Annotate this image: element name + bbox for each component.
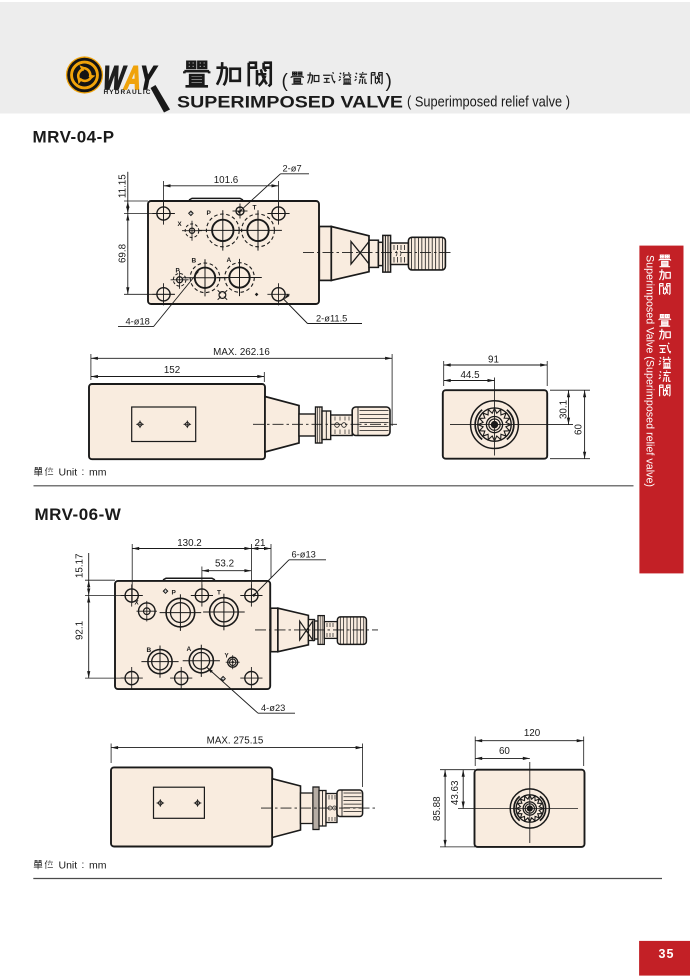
- svg-text:53.2: 53.2: [215, 559, 234, 570]
- svg-text:MRV-06-W: MRV-06-W: [35, 505, 122, 524]
- svg-text:2-ø7: 2-ø7: [283, 164, 302, 174]
- svg-text:MAX. 275.15: MAX. 275.15: [207, 736, 264, 747]
- svg-text:Unit: Unit: [59, 860, 78, 872]
- svg-text:60: 60: [499, 746, 510, 757]
- svg-text:mm: mm: [89, 467, 107, 479]
- svg-text:130.2: 130.2: [177, 538, 202, 549]
- svg-text:120: 120: [524, 728, 541, 739]
- svg-text:HYDRAULIC: HYDRAULIC: [104, 89, 152, 96]
- svg-text:92.1: 92.1: [75, 621, 86, 640]
- svg-text::: :: [82, 860, 85, 871]
- svg-text:101.6: 101.6: [214, 175, 239, 186]
- svg-text:(: (: [282, 71, 289, 92]
- svg-text::: :: [82, 467, 85, 478]
- svg-text:2-ø11.5: 2-ø11.5: [316, 313, 347, 323]
- svg-text:30.1: 30.1: [559, 400, 570, 419]
- svg-text:P: P: [172, 590, 177, 597]
- svg-text:( Superimposed relief valve ): ( Superimposed relief valve ): [407, 95, 570, 111]
- svg-text:MAX. 262.16: MAX. 262.16: [213, 347, 270, 358]
- svg-text:B: B: [192, 258, 197, 265]
- svg-text:21: 21: [255, 538, 266, 549]
- svg-text:4-ø18: 4-ø18: [126, 316, 150, 326]
- svg-text:69.8: 69.8: [118, 243, 129, 263]
- svg-text:P: P: [207, 210, 212, 217]
- svg-text:P: P: [176, 268, 180, 275]
- svg-text:MRV-04-P: MRV-04-P: [33, 128, 115, 147]
- svg-text:60: 60: [574, 424, 585, 435]
- svg-text:): ): [386, 71, 392, 92]
- svg-text:85.88: 85.88: [432, 796, 443, 821]
- svg-text:11.15: 11.15: [118, 174, 129, 198]
- svg-text:Unit: Unit: [59, 467, 78, 479]
- svg-text:T: T: [217, 590, 221, 597]
- svg-text:44.5: 44.5: [460, 370, 480, 381]
- svg-text:A: A: [187, 646, 192, 653]
- svg-text:Superimposed Valve (Superimpos: Superimposed Valve (Superimposed relief …: [644, 255, 656, 487]
- svg-text:15.17: 15.17: [75, 554, 86, 579]
- svg-text:mm: mm: [89, 860, 107, 872]
- svg-text:B: B: [147, 647, 152, 654]
- svg-text:35: 35: [659, 947, 675, 961]
- svg-text:T: T: [253, 205, 257, 212]
- svg-text:4-ø23: 4-ø23: [261, 703, 285, 713]
- svg-text:SUPERIMPOSED VALVE: SUPERIMPOSED VALVE: [177, 93, 403, 112]
- svg-text:A: A: [227, 257, 232, 264]
- svg-text:43.63: 43.63: [450, 780, 461, 805]
- svg-text:152: 152: [164, 365, 180, 376]
- svg-text:6-ø13: 6-ø13: [292, 550, 316, 560]
- svg-text:91: 91: [488, 355, 499, 366]
